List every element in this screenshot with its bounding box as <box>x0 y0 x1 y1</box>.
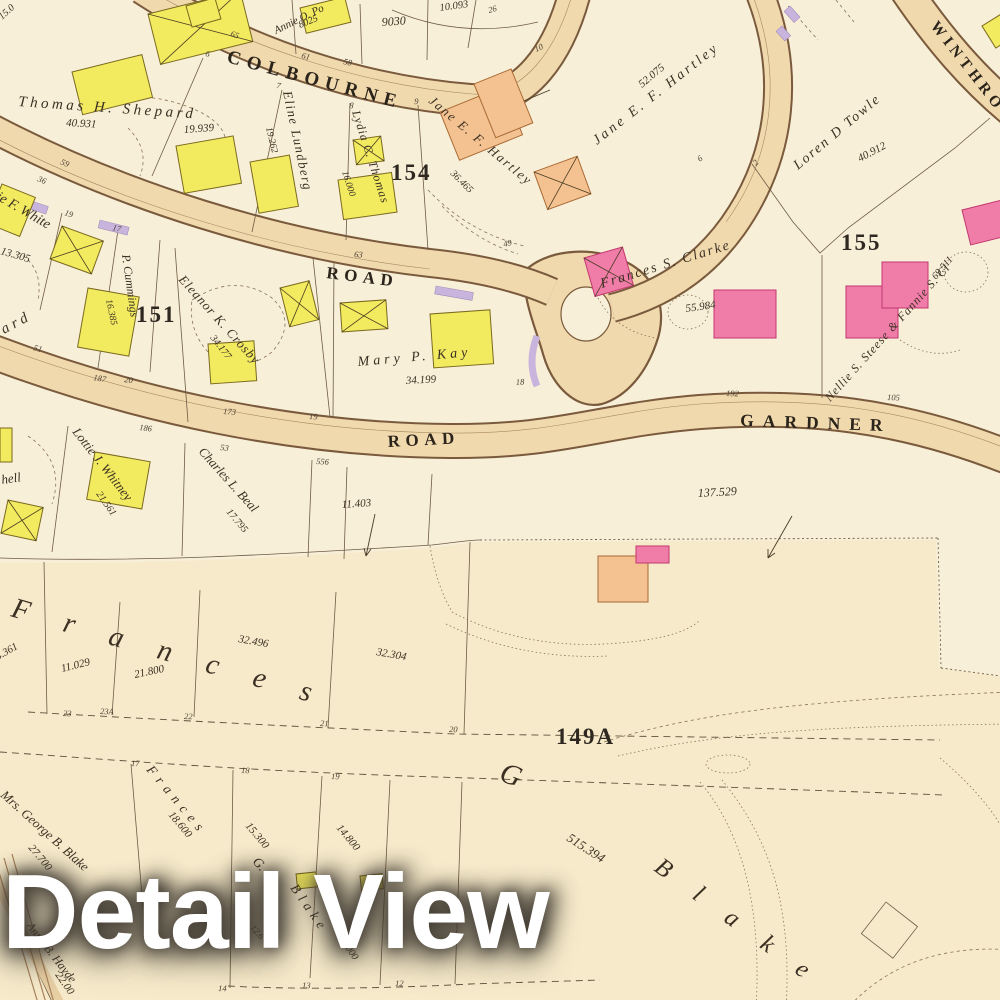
lot-tick: 105 <box>887 392 900 402</box>
district-149a: 149A <box>556 724 615 749</box>
lot-tick: 23A <box>100 706 115 716</box>
owner-hell-fragment: hell <box>0 469 22 487</box>
lot-tick: 18 <box>241 765 251 775</box>
lot-tick: 20 <box>449 724 459 734</box>
lot-tick: 22 <box>184 711 194 721</box>
building-house <box>176 136 241 193</box>
lot-tick: 173 <box>223 406 236 417</box>
lot-tick: 23 <box>63 708 72 718</box>
lot-tick: 13 <box>302 980 311 990</box>
lot-tick: 18 <box>515 376 525 387</box>
area-9030: 9030 <box>381 13 406 29</box>
district-155: 155 <box>841 230 882 255</box>
lot-tick: 19 <box>331 771 341 781</box>
lot-tick: 17 <box>131 758 141 768</box>
area-shepard: 40.931 <box>66 117 97 131</box>
building-wing <box>636 546 669 563</box>
lot-tick: 192 <box>726 388 740 398</box>
area-19939: 19.939 <box>183 122 215 136</box>
lot-tick: 63 <box>354 249 363 260</box>
atlas-map: COLBOURNE ROAD ROAD GARDNER WINTHRO 151 … <box>0 0 1000 1000</box>
area-137529: 137.529 <box>697 484 737 500</box>
lot-tick: 12 <box>395 978 405 988</box>
lot-tick: 186 <box>139 422 154 434</box>
road-label-road-lower: ROAD <box>387 428 460 451</box>
building-house <box>250 155 298 213</box>
lot-tick: 19 <box>309 411 319 421</box>
building-barn-x <box>1 500 43 541</box>
junction-island <box>561 287 611 341</box>
lot-tick: 53 <box>220 442 229 453</box>
building-barn-x <box>340 300 388 332</box>
lot-tick: 556 <box>316 456 330 467</box>
area-kay: 34.199 <box>405 373 437 387</box>
building-house <box>0 428 12 462</box>
area-11403: 11.403 <box>341 497 372 511</box>
district-154: 154 <box>391 160 432 185</box>
lot-tick: 14 <box>218 983 228 993</box>
building-house <box>714 290 776 338</box>
overlay-caption: Detail View <box>2 852 549 973</box>
lot-tick: 21 <box>320 718 329 728</box>
map-detail-view: COLBOURNE ROAD ROAD GARDNER WINTHRO 151 … <box>0 0 1000 1000</box>
